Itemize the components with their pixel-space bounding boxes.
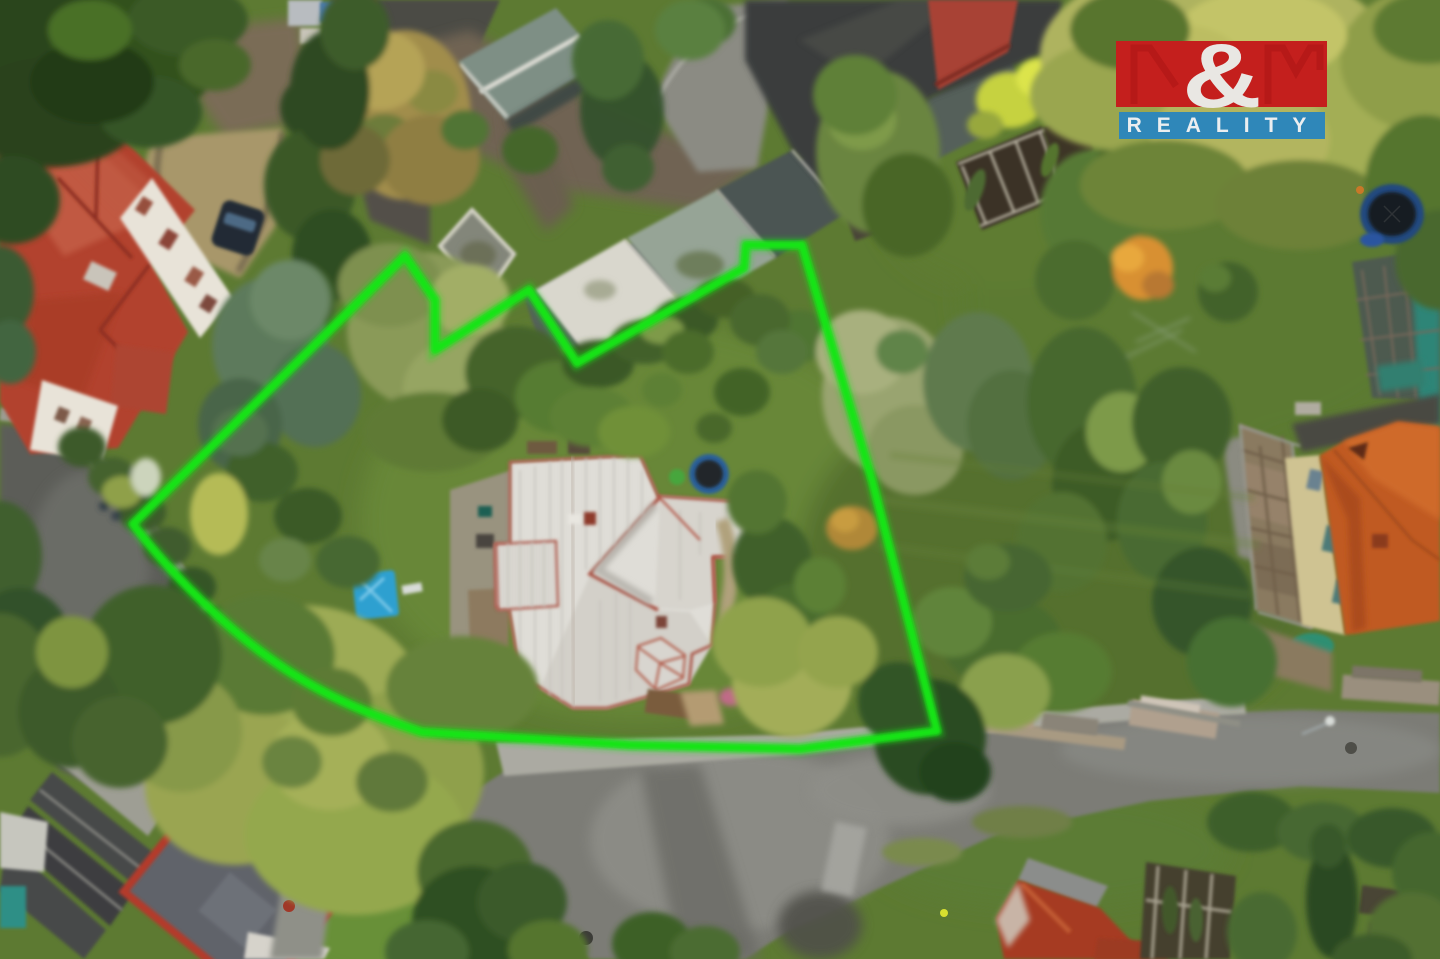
svg-text:REALITY: REALITY <box>1127 114 1322 137</box>
svg-text:&: & <box>1182 26 1261 127</box>
